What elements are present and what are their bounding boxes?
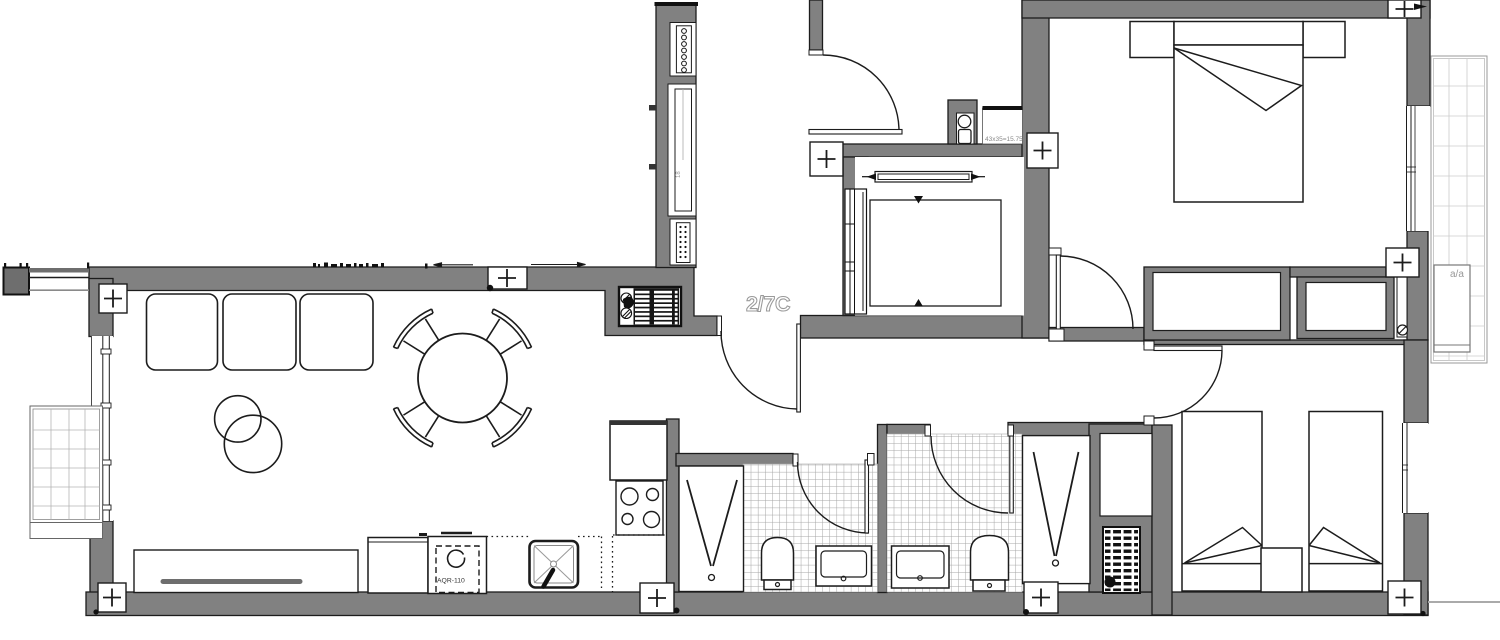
svg-text:43x35=15.75: 43x35=15.75 <box>985 136 1023 143</box>
svg-text:AQR-110: AQR-110 <box>437 578 465 585</box>
svg-text:18: 18 <box>676 171 682 178</box>
svg-text:2/7C: 2/7C <box>746 292 790 316</box>
svg-text:a/a: a/a <box>1450 269 1464 280</box>
